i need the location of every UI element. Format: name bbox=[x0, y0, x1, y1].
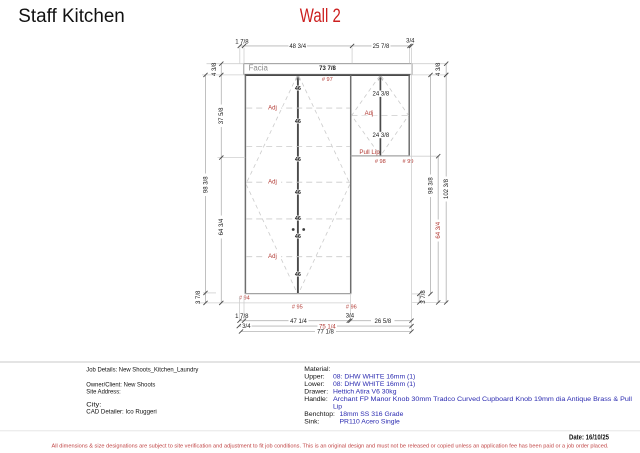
svg-text:46: 46 bbox=[295, 157, 301, 163]
svg-text:37 5/8: 37 5/8 bbox=[219, 107, 225, 124]
svg-text:98 3/8: 98 3/8 bbox=[428, 177, 434, 194]
svg-text:Lip: Lip bbox=[333, 403, 342, 410]
svg-text:Adj: Adj bbox=[268, 254, 277, 260]
svg-text:3/4: 3/4 bbox=[242, 324, 251, 330]
svg-text:4 3/8: 4 3/8 bbox=[212, 62, 218, 76]
svg-text:08: DHW WHITE 16mm (1): 08: DHW WHITE 16mm (1) bbox=[333, 373, 415, 380]
svg-text:77 1/8: 77 1/8 bbox=[317, 330, 334, 336]
svg-text:46: 46 bbox=[295, 119, 301, 125]
svg-text:24 3/8: 24 3/8 bbox=[373, 92, 390, 98]
svg-text:102 3/8: 102 3/8 bbox=[444, 178, 450, 199]
svg-text:46: 46 bbox=[295, 216, 301, 222]
svg-text:1 7/8: 1 7/8 bbox=[235, 39, 249, 45]
svg-text:Benchtop:: Benchtop: bbox=[304, 411, 335, 418]
svg-text:64 3/4: 64 3/4 bbox=[219, 218, 225, 235]
svg-text:46: 46 bbox=[295, 272, 301, 278]
svg-text:CAD Detailer: Ico Ruggeri: CAD Detailer: Ico Ruggeri bbox=[86, 408, 157, 415]
svg-text:47 1/4: 47 1/4 bbox=[290, 319, 307, 325]
svg-text:46: 46 bbox=[295, 190, 301, 196]
svg-text:Lower:: Lower: bbox=[304, 381, 325, 388]
svg-text:All dimensions & size designat: All dimensions & size designations are s… bbox=[52, 444, 609, 450]
svg-text:08: DHW WHITE 16mm (1): 08: DHW WHITE 16mm (1) bbox=[333, 381, 415, 388]
svg-text:# 96: # 96 bbox=[346, 304, 357, 310]
svg-text:# 95: # 95 bbox=[292, 304, 303, 310]
svg-text:# 98: # 98 bbox=[375, 159, 386, 165]
svg-text:Wall 2: Wall 2 bbox=[300, 6, 341, 27]
svg-text:Handle:: Handle: bbox=[304, 396, 328, 403]
svg-text:18mm SS 316 Grade: 18mm SS 316 Grade bbox=[340, 411, 404, 418]
svg-text:4 3/8: 4 3/8 bbox=[436, 62, 442, 76]
svg-text:PR110 Acero Single: PR110 Acero Single bbox=[340, 418, 401, 425]
svg-text:Drawer:: Drawer: bbox=[304, 388, 328, 395]
svg-text:Sink:: Sink: bbox=[304, 418, 319, 425]
svg-text:Archant FP Manor Knob 30mm Tra: Archant FP Manor Knob 30mm Tradco Curved… bbox=[333, 396, 632, 403]
svg-text:64 3/4: 64 3/4 bbox=[436, 221, 442, 238]
svg-text:3 7/8: 3 7/8 bbox=[196, 290, 202, 304]
svg-text:98 3/8: 98 3/8 bbox=[203, 176, 209, 193]
svg-text:46: 46 bbox=[295, 86, 301, 92]
svg-text:3/4: 3/4 bbox=[406, 39, 415, 45]
svg-text:Adj: Adj bbox=[268, 105, 277, 111]
svg-text:48 3/4: 48 3/4 bbox=[289, 44, 306, 50]
svg-text:Staff Kitchen: Staff Kitchen bbox=[18, 6, 125, 27]
svg-text:1 7/8: 1 7/8 bbox=[235, 314, 249, 320]
svg-text:25 7/8: 25 7/8 bbox=[373, 44, 390, 50]
svg-text:24 3/8: 24 3/8 bbox=[373, 133, 390, 139]
svg-text:Upper:: Upper: bbox=[304, 373, 325, 380]
svg-text:Adj: Adj bbox=[365, 111, 374, 117]
svg-text:Site Address:: Site Address: bbox=[86, 388, 121, 395]
svg-text:3 7/8: 3 7/8 bbox=[421, 290, 427, 304]
svg-text:Facia: Facia bbox=[249, 64, 269, 73]
svg-text:# 97: # 97 bbox=[322, 77, 333, 83]
svg-text:Job Details: New Shoots_Kitche: Job Details: New Shoots_Kitchen_Laundry bbox=[86, 366, 199, 373]
svg-text:Material:: Material: bbox=[304, 366, 330, 373]
svg-text:Hettich Atira V6 30kg: Hettich Atira V6 30kg bbox=[333, 388, 397, 395]
svg-text:73 7/8: 73 7/8 bbox=[319, 66, 336, 72]
svg-text:Pull Lip: Pull Lip bbox=[359, 149, 380, 156]
svg-text:46: 46 bbox=[295, 234, 301, 240]
svg-text:3/4: 3/4 bbox=[346, 313, 355, 319]
svg-text:Adj: Adj bbox=[268, 179, 277, 185]
svg-text:Date: 16/10/25: Date: 16/10/25 bbox=[569, 432, 609, 441]
svg-text:26 5/8: 26 5/8 bbox=[375, 319, 392, 325]
